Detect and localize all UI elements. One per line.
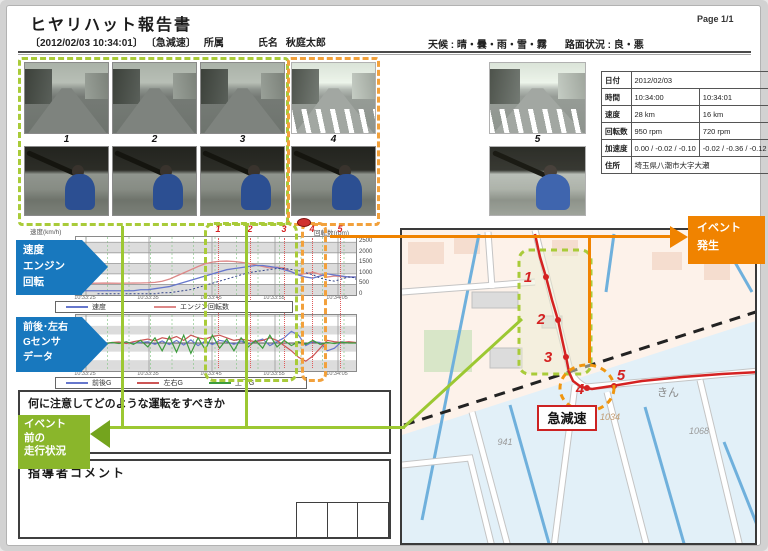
parcel-941: 941 xyxy=(497,437,512,447)
signature-stamp-cells xyxy=(296,502,389,538)
callout-line: エンジン xyxy=(23,259,82,275)
scene-building-left xyxy=(292,69,319,104)
camera-driver-view-4 xyxy=(291,146,376,216)
header-divider xyxy=(18,51,751,53)
callout-line: 回転 xyxy=(23,275,82,291)
rpm-tick-2000: 2000 xyxy=(359,249,383,255)
gsensor-arrow xyxy=(82,317,108,371)
marker-guide-5 xyxy=(340,238,341,368)
camera-frame-number-2: 2 xyxy=(112,134,197,145)
scene-building-left xyxy=(490,69,520,104)
driver-body xyxy=(153,174,183,209)
scene-building-left xyxy=(25,69,52,104)
scene-building-right xyxy=(352,73,375,100)
stamp-cell xyxy=(296,502,328,538)
page-number: Page 1/1 xyxy=(697,14,734,24)
pre-event-driving-label: イベント 前の 走行状況 xyxy=(18,415,90,469)
gx-legend-swatch xyxy=(66,382,88,384)
parcel-1034: 1034 xyxy=(600,412,620,422)
info-label: 住所 xyxy=(602,157,632,174)
marker-guide-4 xyxy=(312,238,313,368)
info-value: 10:34:00 xyxy=(631,89,699,106)
camera-road-view-3 xyxy=(200,62,285,134)
info-row-住所: 住所埼玉県八潮市大字大瀬 xyxy=(602,157,768,174)
camera-driver-view-5 xyxy=(489,146,586,216)
info-value: 2012/02/03 xyxy=(631,72,768,89)
pre-event-connector-v2 xyxy=(245,226,248,428)
map-canvas: 1 2 3 4 5 941 1034 1068 きん 急減速 xyxy=(402,230,757,545)
driver-body xyxy=(536,174,570,209)
driver-body xyxy=(332,174,362,209)
report-page: ヒヤリハット報告書 Page 1/1 〔2012/02/03 10:34:01〕… xyxy=(0,0,768,551)
page-title: ヒヤリハット報告書 xyxy=(30,11,192,35)
info-value: 10:34:01 xyxy=(699,89,768,106)
chart2-legend: 前後G 左右G 上下G xyxy=(55,377,307,389)
speed-axis-label: 速度(km/h) xyxy=(30,226,61,236)
rpm-legend-swatch xyxy=(154,306,176,308)
map-point-4: 4 xyxy=(575,381,585,398)
camera-road-view-2 xyxy=(112,62,197,134)
driver-body xyxy=(241,174,271,209)
callout-line: 前後･左右 xyxy=(23,320,82,335)
info-row-加速度: 加速度0.00 / -0.02 / -0.10-0.02 / -0.36 / -… xyxy=(602,140,768,157)
info-row-時間: 時間10:34:0010:34:01 xyxy=(602,89,768,106)
speed-rpm-chart xyxy=(75,236,357,296)
label-line: イベント xyxy=(24,418,90,432)
rpm-tick-0: 0 xyxy=(359,291,383,297)
timestamp: 〔2012/02/03 10:34:01〕 xyxy=(30,38,143,49)
event-connector-v xyxy=(588,237,591,363)
map-point-3: 3 xyxy=(544,349,553,366)
info-row-日付: 日付2012/02/03 xyxy=(602,72,768,89)
info-value: 埼玉県八潮市大字大瀬 xyxy=(631,157,768,174)
chart-marker-1: 1 xyxy=(213,224,223,234)
label-line: 発生 xyxy=(697,238,765,256)
camera-frame-number-5: 5 xyxy=(489,134,586,145)
chart-marker-5: 5 xyxy=(335,224,345,234)
rpm-tick-1500: 1500 xyxy=(359,259,383,265)
map-point-1: 1 xyxy=(524,269,532,286)
name-label: 氏名 xyxy=(258,38,278,49)
event-occurred-label: イベント 発生 xyxy=(688,216,765,264)
scene-crosswalk xyxy=(490,109,585,133)
header-divider-thin xyxy=(18,54,751,55)
chart1-legend: 速度 エンジン回転数 xyxy=(55,301,293,313)
gsensor-callout: 前後･左右 Gセンサ データ xyxy=(16,317,82,372)
map-point-5: 5 xyxy=(617,367,626,384)
scene-building-right xyxy=(261,73,284,100)
info-value: 16 km xyxy=(699,106,768,123)
info-value: 0.00 / -0.02 / -0.10 xyxy=(631,140,699,157)
callout-line: データ xyxy=(23,350,82,365)
info-value: 28 km xyxy=(631,106,699,123)
rpm-tick-500: 500 xyxy=(359,280,383,286)
advice-box-title: 何に注意してどのような運転をすべきか xyxy=(28,395,225,411)
scene-building-left xyxy=(201,69,228,104)
pre-event-connector-v1 xyxy=(121,226,124,428)
info-value: -0.02 / -0.36 / -0.12 xyxy=(699,140,768,157)
gy-legend-swatch xyxy=(137,382,159,384)
chart-marker-3: 3 xyxy=(279,224,289,234)
camera-road-view-1 xyxy=(24,62,109,134)
speed-engine-callout: 速度 エンジン 回転 xyxy=(16,240,82,295)
rpm-legend-label: エンジン回転数 xyxy=(180,302,229,312)
camera-road-view-4 xyxy=(291,62,376,134)
gz-legend-swatch xyxy=(209,382,231,384)
pre-event-connector-h xyxy=(106,426,405,429)
map-place-note: きん xyxy=(657,386,679,399)
parcel-1068: 1068 xyxy=(689,426,709,436)
camera-road-view-5 xyxy=(489,62,586,134)
rpm-tick-2500: 2500 xyxy=(359,238,383,244)
scene-building-left xyxy=(113,69,140,104)
info-label: 日付 xyxy=(602,72,632,89)
info-label: 速度 xyxy=(602,106,632,123)
camera-frame-number-4: 4 xyxy=(291,134,376,145)
rpm-tick-1000: 1000 xyxy=(359,270,383,276)
callout-line: Gセンサ xyxy=(23,335,82,350)
gy-legend-label: 左右G xyxy=(163,378,182,388)
speed-legend-swatch xyxy=(66,306,88,308)
stamp-cell xyxy=(358,502,389,538)
label-line: 走行状況 xyxy=(24,445,90,459)
camera-frame-number-1: 1 xyxy=(24,134,109,145)
road-condition-field: 路面状況 : 良・悪 xyxy=(565,40,644,51)
info-label: 回転数 xyxy=(602,123,632,140)
scene-building-right xyxy=(558,73,585,100)
camera-frame-number-3: 3 xyxy=(200,134,285,145)
info-value: 950 rpm xyxy=(631,123,699,140)
label-line: イベント xyxy=(697,220,765,238)
info-value: 720 rpm xyxy=(699,123,768,140)
report-subheader: 〔2012/02/03 10:34:01〕〔急減速〕所属氏名秋庭太郎 xyxy=(30,34,334,49)
scene-building-right xyxy=(85,73,108,100)
camera-driver-view-2 xyxy=(112,146,197,216)
event-info-table: 日付2012/02/03時間10:34:0010:34:01速度28 km16 … xyxy=(601,71,768,174)
sudden-brake-label: 急減速 xyxy=(547,411,586,426)
event-type-badge: 〔急減速〕 xyxy=(151,38,196,49)
affiliation-label: 所属 xyxy=(204,38,224,49)
event-connector-h xyxy=(330,235,672,238)
camera-driver-view-1 xyxy=(24,146,109,216)
info-label: 時間 xyxy=(602,89,632,106)
info-row-速度: 速度28 km16 km xyxy=(602,106,768,123)
map-field xyxy=(424,330,472,372)
info-label: 加速度 xyxy=(602,140,632,157)
scene-building-right xyxy=(173,73,196,100)
sudden-brake-icon xyxy=(297,218,311,227)
map-point-2: 2 xyxy=(536,311,546,328)
speed-engine-arrow xyxy=(82,240,108,294)
weather-field: 天候 : 晴・曇・雨・雪・霧 xyxy=(428,40,547,51)
scene-crosswalk xyxy=(292,109,375,133)
gsensor-chart xyxy=(75,314,357,372)
stamp-cell xyxy=(328,502,359,538)
camera-driver-view-3 xyxy=(200,146,285,216)
driver-body xyxy=(65,174,95,209)
gx-legend-label: 前後G xyxy=(92,378,111,388)
conditions-line: 天候 : 晴・曇・雨・雪・霧路面状況 : 良・悪 xyxy=(428,36,662,51)
label-line: 前の xyxy=(24,432,90,446)
route-map: 1 2 3 4 5 941 1034 1068 きん 急減速 xyxy=(400,228,757,545)
speed-legend-label: 速度 xyxy=(92,302,106,312)
callout-line: 速度 xyxy=(23,243,82,259)
driver-name: 秋庭太郎 xyxy=(286,38,326,49)
info-row-回転数: 回転数950 rpm720 rpm xyxy=(602,123,768,140)
